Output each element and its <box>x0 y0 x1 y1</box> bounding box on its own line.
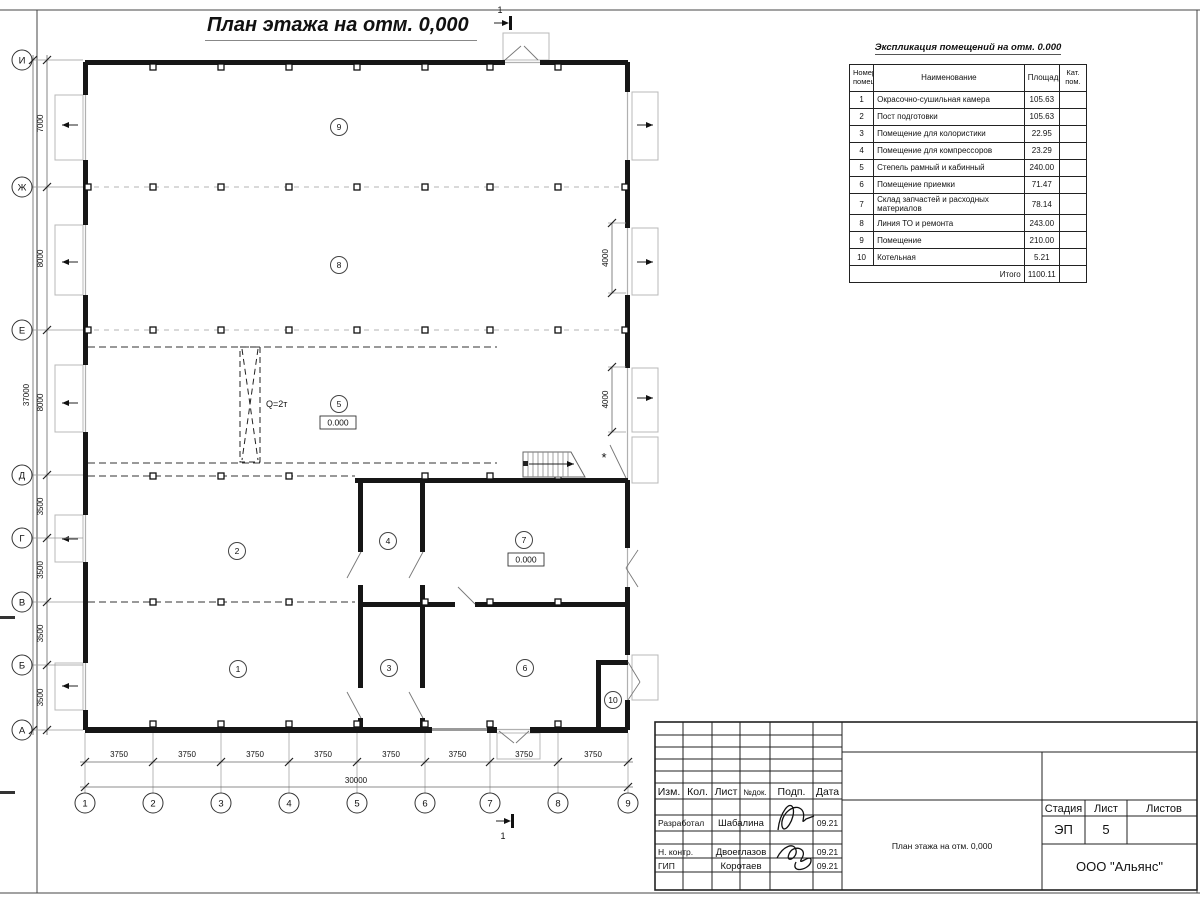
column <box>150 721 156 727</box>
column <box>354 64 360 70</box>
arrow-head <box>502 20 509 26</box>
wall <box>85 727 432 733</box>
expl-cell: Помещение приемки <box>874 177 1025 194</box>
room-number: 3 <box>387 663 392 673</box>
window-strip <box>432 728 487 731</box>
dim-label: 3750 <box>246 750 264 759</box>
axis-label: 9 <box>625 799 630 810</box>
column <box>555 64 561 70</box>
dim-label: 3750 <box>449 750 467 759</box>
wall <box>358 585 363 688</box>
expl-cell: 10 <box>850 249 874 266</box>
column <box>422 184 428 190</box>
expl-header-name: Наименование <box>874 65 1025 92</box>
dim-label: 3750 <box>178 750 196 759</box>
arrow-head <box>646 395 653 401</box>
column <box>85 184 91 190</box>
tb-name: Двоеглазов <box>716 847 767 858</box>
arrow-head <box>646 122 653 128</box>
expl-row: 7Склад запчастей и расходных материалов7… <box>850 194 1087 215</box>
expl-row: 5Степель рамный и кабинный240.00 <box>850 160 1087 177</box>
explication-title: Экспликация помещений на отм. 0.000 <box>849 42 1087 55</box>
expl-row: 8Линия ТО и ремонта243.00 <box>850 215 1087 232</box>
fold-mark <box>0 791 15 794</box>
column <box>555 599 561 605</box>
column <box>422 64 428 70</box>
column <box>286 473 292 479</box>
column <box>150 64 156 70</box>
wall <box>83 432 88 515</box>
section-mark-tick <box>509 16 512 30</box>
column <box>487 599 493 605</box>
dim-label: 3750 <box>584 750 602 759</box>
expl-cell: 8 <box>850 215 874 232</box>
column <box>218 184 224 190</box>
expl-cell: Котельная <box>874 249 1025 266</box>
room-number: 1 <box>236 664 241 674</box>
axis-label: 4 <box>286 799 291 810</box>
tb-header-label: Изм. <box>658 786 681 798</box>
room-number: 4 <box>386 536 391 546</box>
dim-label: 4000 <box>601 390 610 408</box>
tb-date: 09.21 <box>817 847 839 857</box>
expl-cell: 4 <box>850 143 874 160</box>
expl-row: 4Помещение для компрессоров23.29 <box>850 143 1087 160</box>
room-number: 9 <box>337 122 342 132</box>
expl-row: 6Помещение приемки71.47 <box>850 177 1087 194</box>
dim-label: 8000 <box>36 249 45 267</box>
explication-title-text: Экспликация помещений на отм. 0.000 <box>875 42 1062 55</box>
section-mark-tick <box>511 814 514 828</box>
room-number: 2 <box>235 546 240 556</box>
axis-label: 3 <box>218 799 223 810</box>
expl-row: 2Пост подготовки105.63 <box>850 109 1087 126</box>
dim-label: 3500 <box>36 624 45 642</box>
expl-header-area: Площадь <box>1024 65 1059 92</box>
expl-cell-cat <box>1059 249 1086 266</box>
expl-cell-cat <box>1059 177 1086 194</box>
explication-table: Номер помещ.НаименованиеПлощадьКат. пом.… <box>849 64 1087 283</box>
wall <box>487 727 497 733</box>
plan-title-text: План этажа на отм. 0,000 <box>205 14 477 41</box>
door-swing <box>409 692 423 718</box>
asterisk-mark: * <box>601 450 606 465</box>
expl-cell-cat <box>1059 143 1086 160</box>
expl-cell: 5 <box>850 160 874 177</box>
axis-label: Ж <box>18 183 27 194</box>
expl-cell-cat <box>1059 160 1086 177</box>
expl-cell: 23.29 <box>1024 143 1059 160</box>
door-swing <box>505 46 521 60</box>
column <box>354 327 360 333</box>
axis-label: Г <box>19 534 24 545</box>
wall <box>625 160 630 228</box>
expl-cell: 210.00 <box>1024 232 1059 249</box>
expl-cell: 105.63 <box>1024 92 1059 109</box>
column <box>622 184 628 190</box>
expl-cell: 78.14 <box>1024 194 1059 215</box>
column <box>422 473 428 479</box>
expl-cell-cat <box>1059 232 1086 249</box>
tb-header-label: №док. <box>743 788 766 797</box>
tb-role: Н. контр. <box>658 847 693 857</box>
axis-label: 1 <box>82 799 87 810</box>
wall <box>83 710 88 730</box>
wall <box>530 727 628 733</box>
tb-stage-label: Стадия <box>1045 803 1083 815</box>
expl-cell: 5.21 <box>1024 249 1059 266</box>
expl-cell-cat <box>1059 92 1086 109</box>
dim-label: 3750 <box>314 750 332 759</box>
expl-cell: 1 <box>850 92 874 109</box>
wall <box>358 478 363 552</box>
room-number: 7 <box>522 535 527 545</box>
fold-mark <box>0 616 15 619</box>
column <box>286 327 292 333</box>
exit-apron <box>632 368 658 432</box>
wall <box>625 587 630 655</box>
expl-cell: 7 <box>850 194 874 215</box>
expl-total-label: Итого <box>850 266 1025 283</box>
expl-cell: 71.47 <box>1024 177 1059 194</box>
wall <box>625 62 630 92</box>
expl-header-num: Номер помещ. <box>850 65 874 92</box>
column <box>218 599 224 605</box>
expl-cell: 105.63 <box>1024 109 1059 126</box>
dim-label: 37000 <box>22 383 31 406</box>
building-geometry <box>55 33 658 759</box>
expl-cell: 240.00 <box>1024 160 1059 177</box>
dim-label: 7000 <box>36 114 45 132</box>
column <box>218 721 224 727</box>
column <box>555 184 561 190</box>
room-number: 6 <box>523 663 528 673</box>
drawing-sheet: { "sheet": { "plan_title": "План этажа н… <box>0 0 1200 900</box>
dim-label: 3750 <box>515 750 533 759</box>
exit-apron <box>632 655 658 700</box>
expl-cell: Склад запчастей и расходных материалов <box>874 194 1025 215</box>
tb-header-label: Дата <box>816 786 839 798</box>
dim-label: 30000 <box>345 776 368 785</box>
door-swing <box>628 662 640 682</box>
expl-row: 9Помещение210.00 <box>850 232 1087 249</box>
expl-cell-cat <box>1059 109 1086 126</box>
column <box>286 599 292 605</box>
tb-stage-value: ЭП <box>1054 822 1073 837</box>
column <box>286 721 292 727</box>
column <box>218 473 224 479</box>
wall <box>596 660 628 665</box>
column <box>487 721 493 727</box>
arrow-head <box>62 536 69 542</box>
exit-apron <box>55 365 83 432</box>
column <box>487 327 493 333</box>
door-swing <box>524 46 538 60</box>
axis-label: Б <box>19 661 25 672</box>
expl-cell: 6 <box>850 177 874 194</box>
expl-total-value: 1100.11 <box>1024 266 1059 283</box>
column <box>622 327 628 333</box>
arrow-head <box>646 259 653 265</box>
elevation-value: 0.000 <box>515 555 537 565</box>
crane-zone <box>240 347 260 462</box>
tb-doc-name: План этажа на отм. 0,000 <box>892 841 993 851</box>
wall <box>85 60 505 65</box>
wall <box>625 480 630 548</box>
expl-cell-cat <box>1059 215 1086 232</box>
exit-apron <box>632 437 658 483</box>
explication-table-container: Номер помещ.НаименованиеПлощадьКат. пом.… <box>849 64 1087 283</box>
expl-cell: Пост подготовки <box>874 109 1025 126</box>
tb-role: ГИП <box>658 861 675 871</box>
exit-apron <box>632 92 658 160</box>
arrow-head <box>62 400 69 406</box>
column <box>487 473 493 479</box>
dim-label: 3500 <box>36 561 45 579</box>
door-swing <box>347 692 361 718</box>
column <box>218 327 224 333</box>
room-number: 5 <box>337 399 342 409</box>
door-swing <box>347 552 361 578</box>
wall <box>596 660 601 730</box>
expl-cell-cat <box>1059 126 1086 143</box>
axis-label: Е <box>19 326 25 337</box>
column <box>354 184 360 190</box>
expl-cell: Степель рамный и кабинный <box>874 160 1025 177</box>
axis-label: В <box>19 598 25 609</box>
axis-label: И <box>19 56 26 67</box>
wall <box>83 160 88 225</box>
expl-header-cat: Кат. пом. <box>1059 65 1086 92</box>
section-mark-label: 1 <box>497 5 502 15</box>
axis-label: 6 <box>422 799 427 810</box>
column <box>150 327 156 333</box>
tb-date: 09.21 <box>817 861 839 871</box>
expl-cell: 3 <box>850 126 874 143</box>
wall <box>83 62 88 95</box>
wall <box>475 602 628 607</box>
column <box>150 184 156 190</box>
wall <box>420 478 425 552</box>
arrow-head <box>62 122 69 128</box>
column <box>150 473 156 479</box>
door-swing <box>458 587 475 604</box>
expl-cell-cat <box>1059 194 1086 215</box>
dim-label: 3500 <box>36 497 45 515</box>
axis-label: 5 <box>354 799 359 810</box>
dim-label: 8000 <box>36 393 45 411</box>
tb-header-label: Лист <box>715 786 738 798</box>
expl-row: 1Окрасочно-сушильная камера105.63 <box>850 92 1087 109</box>
elevation-value: 0.000 <box>327 418 349 428</box>
tb-sheets-label: Листов <box>1146 803 1182 815</box>
tb-header-label: Подп. <box>778 786 806 798</box>
tb-date: 09.21 <box>817 818 839 828</box>
room-number: 10 <box>608 695 618 705</box>
expl-cell: 9 <box>850 232 874 249</box>
expl-cell-cat <box>1059 266 1086 283</box>
expl-cell: 22.95 <box>1024 126 1059 143</box>
tb-company: ООО "Альянс" <box>1076 859 1163 874</box>
column <box>422 327 428 333</box>
wall <box>358 602 455 607</box>
door-swing <box>610 445 626 478</box>
expl-row: 3Помещение для колористики22.95 <box>850 126 1087 143</box>
column <box>422 721 428 727</box>
wall <box>540 60 628 65</box>
expl-cell: Помещение <box>874 232 1025 249</box>
tb-header-label: Кол. <box>687 786 708 798</box>
room-number: 8 <box>337 260 342 270</box>
axis-label: 8 <box>555 799 560 810</box>
expl-row: 10Котельная5.21 <box>850 249 1087 266</box>
door-swing <box>628 682 640 700</box>
axis-label: 7 <box>487 799 492 810</box>
column <box>487 64 493 70</box>
expl-cell: Линия ТО и ремонта <box>874 215 1025 232</box>
crane-capacity-label: Q=2т <box>266 399 287 409</box>
arrow-head <box>62 683 69 689</box>
expl-total-row: Итого1100.11 <box>850 266 1087 283</box>
expl-cell: Окрасочно-сушильная камера <box>874 92 1025 109</box>
column <box>85 327 91 333</box>
dim-label: 3500 <box>36 688 45 706</box>
dim-label: 3750 <box>110 750 128 759</box>
door-swing <box>409 552 423 578</box>
expl-cell: 243.00 <box>1024 215 1059 232</box>
tb-sheet-value: 5 <box>1102 822 1109 837</box>
section-mark-label: 1 <box>500 831 505 841</box>
axis-label: 2 <box>150 799 155 810</box>
stairs-start <box>523 461 528 466</box>
column <box>218 64 224 70</box>
column <box>422 599 428 605</box>
axis-label: Д <box>19 471 26 482</box>
dim-label: 3750 <box>382 750 400 759</box>
wall <box>83 562 88 663</box>
expl-cell: 2 <box>850 109 874 126</box>
tb-sheet-label: Лист <box>1094 803 1118 815</box>
tb-name: Шабалина <box>718 818 765 829</box>
tb-role: Разработал <box>658 818 704 828</box>
wall <box>625 700 630 730</box>
column <box>487 184 493 190</box>
arrow-head <box>504 818 511 824</box>
expl-cell: Помещение для компрессоров <box>874 143 1025 160</box>
column <box>555 721 561 727</box>
column <box>286 64 292 70</box>
dim-label: 4000 <box>601 249 610 267</box>
axis-label: А <box>19 726 26 737</box>
title-block: Изм.Кол.Лист№док.Подп.ДатаРазработалШаба… <box>655 722 1197 890</box>
column <box>555 327 561 333</box>
column <box>150 599 156 605</box>
tb-name: Коротаев <box>720 861 761 872</box>
plan-title: План этажа на отм. 0,000 <box>205 14 477 41</box>
column <box>354 721 360 727</box>
arrow-head <box>62 259 69 265</box>
expl-cell: Помещение для колористики <box>874 126 1025 143</box>
column <box>286 184 292 190</box>
